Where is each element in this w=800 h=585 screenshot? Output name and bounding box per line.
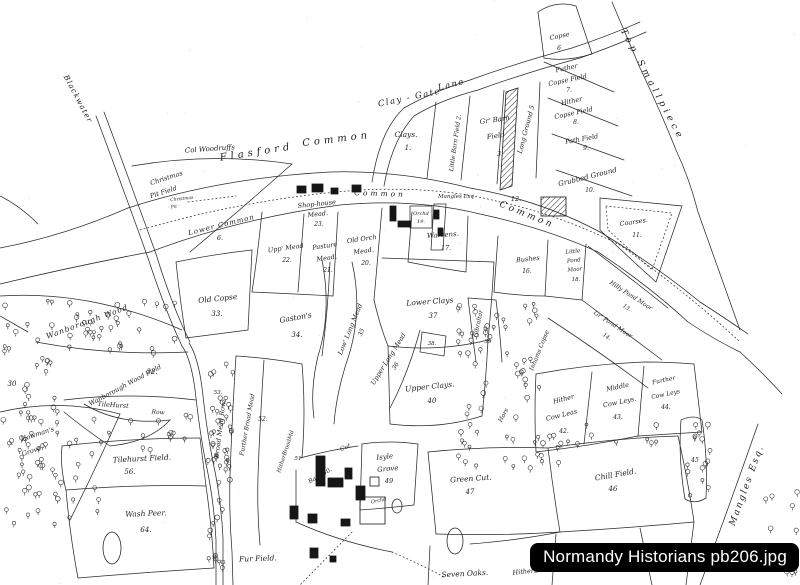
map-label-path-field-no: 9. — [583, 145, 589, 152]
tree-icon — [503, 456, 507, 463]
tree-icon — [26, 322, 29, 328]
scan-speckle — [28, 198, 29, 199]
tree-icon — [209, 431, 213, 438]
tree-icon — [25, 382, 30, 389]
scan-speckle — [699, 326, 700, 327]
tree-icon — [706, 486, 710, 493]
tree-icon — [75, 438, 78, 444]
enclosure-outline — [392, 499, 402, 513]
map-label-wash-peer-no: 64. — [140, 526, 151, 534]
scan-speckle — [475, 34, 476, 35]
tree-icon — [790, 504, 794, 511]
map-label-bushes-no: 16. — [522, 268, 532, 275]
tree-icon — [51, 468, 55, 474]
map-label-further-broad-no: 52. — [258, 416, 268, 423]
building — [312, 184, 323, 192]
map-label-christmas-pit-1: · Christmas · — [167, 194, 197, 203]
map-label-old-orch-2: Mead. — [352, 246, 375, 257]
map-label-no-30: 30 — [8, 380, 17, 388]
tree-icon — [53, 396, 56, 402]
map-label-old-copse-no: 33. — [211, 310, 222, 318]
tree-icon — [218, 464, 221, 470]
scan-speckle — [167, 113, 168, 114]
tree-icon — [795, 490, 800, 497]
map-label-futher-copse-2: Copse Field — [548, 72, 588, 88]
map-label-chill-field: Chill Field. — [594, 466, 637, 482]
tree-icon — [511, 437, 515, 444]
building — [330, 556, 336, 562]
tree-icon — [54, 473, 58, 479]
tree-icon — [184, 413, 188, 419]
map-label-little-pond-no: 18. — [572, 277, 581, 283]
tree-icon — [515, 371, 520, 379]
building — [308, 514, 317, 523]
building — [434, 210, 439, 219]
scan-speckle — [384, 230, 385, 231]
tree-icon — [116, 321, 119, 327]
map-label-grt-barn-2: Field — [485, 131, 505, 142]
scan-speckle — [57, 394, 58, 395]
tree-icon — [537, 435, 540, 441]
map-labels: BlackwaterCol WoodruffsChristmasPit Fiel… — [8, 27, 767, 579]
map-label-pasture-no: 21. — [322, 267, 333, 274]
tree-icon — [68, 516, 72, 522]
scan-speckle — [55, 469, 56, 470]
map-label-middle-cow-1: Middle — [605, 381, 630, 394]
tree-icon — [55, 410, 59, 416]
map-label-old-orch-no: 20. — [360, 260, 371, 267]
tree-icon — [7, 347, 10, 353]
tree-icon — [98, 334, 102, 340]
enclosure-outline — [447, 528, 463, 554]
scan-speckle — [238, 491, 239, 492]
tree-icon — [212, 522, 215, 527]
scan-speckle — [695, 535, 696, 536]
map-label-upper-long-mead-no: 36 — [391, 361, 401, 371]
map-stage: BlackwaterCol WoodruffsChristmasPit Fiel… — [0, 0, 800, 585]
tree-icon — [207, 534, 211, 541]
tree-icon — [53, 492, 57, 498]
tree-icon — [3, 303, 8, 310]
tree-icon — [155, 302, 159, 308]
tree-icon — [224, 362, 228, 369]
tree-icon — [14, 329, 19, 336]
tree-icon — [527, 319, 532, 326]
tree-icon — [512, 464, 515, 470]
map-label-upp-mead: Upp' Mead — [267, 242, 304, 255]
tree-icon — [481, 391, 486, 398]
tree-icon — [522, 358, 526, 365]
tree-icon — [128, 419, 132, 426]
building — [541, 197, 566, 216]
building — [390, 206, 396, 221]
tree-icon — [142, 299, 146, 306]
map-label-mangles-box: Mangles Esq — [437, 194, 474, 200]
tree-icon — [505, 435, 508, 441]
map-label-chill-field-no: 46 — [608, 485, 618, 493]
tree-icon — [1, 417, 6, 424]
map-label-clays: Clays. — [394, 130, 417, 139]
scan-speckle — [363, 172, 364, 173]
scan-speckle — [319, 335, 320, 336]
scan-speckle — [592, 37, 593, 38]
scan-speckle — [59, 583, 60, 584]
scan-speckle — [293, 297, 294, 298]
map-label-coarses: Coarses. — [619, 216, 648, 228]
map-label-inhams-copse: Inhams Copse — [528, 329, 551, 373]
map-label-coarses-no: 11. — [632, 232, 642, 239]
tree-icon — [225, 448, 229, 454]
tree-icon — [540, 441, 545, 449]
tree-icon — [231, 370, 234, 376]
map-label-hither-broad-mead: HitherBroadMd — [276, 429, 296, 474]
tree-icon — [220, 566, 224, 573]
map-label-grubbed-ground: Grubbed Ground — [557, 166, 618, 188]
map-label-christmas-pit-field-1: Christmas — [149, 169, 184, 187]
tree-icon — [34, 493, 37, 499]
tree-icon — [465, 351, 470, 358]
map-label-tilehurst-row-2: Row — [150, 408, 166, 416]
scan-speckle — [185, 112, 186, 113]
scan-speckle — [477, 174, 478, 175]
scan-speckle — [307, 17, 308, 18]
scan-speckle — [116, 15, 117, 16]
building — [297, 186, 306, 193]
tree-icon — [21, 463, 24, 468]
tree-icon — [528, 466, 532, 473]
building — [356, 486, 365, 500]
tree-icon — [21, 470, 25, 476]
map-label-common-mid: Common — [354, 188, 406, 199]
tree-icon — [151, 351, 156, 358]
tree-icon — [67, 441, 72, 448]
map-label-upp-mead-no: 22. — [281, 257, 292, 264]
map-label-parcel-38: 38. — [428, 341, 437, 347]
tree-icon — [655, 440, 658, 446]
map-label-lower-clays: Lower Clays — [405, 295, 454, 307]
map-label-copse: Copse — [549, 30, 571, 42]
tree-icon — [141, 446, 145, 452]
scan-speckle — [459, 242, 460, 243]
tree-icon — [479, 348, 483, 354]
tree-icon — [173, 301, 177, 307]
map-label-hilly-pond-no: 13. — [621, 303, 632, 313]
map-label-wash-peer: Wash Peer. — [125, 508, 167, 518]
map-label-lower-clays-no: 37 — [429, 312, 438, 320]
map-label-old-orch-1: Old Orch — [346, 233, 377, 245]
building — [341, 519, 350, 526]
tree-icon — [208, 371, 213, 378]
map-label-clay-gate-lane: Lane — [436, 77, 466, 94]
tree-icon — [93, 486, 97, 492]
building — [290, 506, 298, 519]
map-label-old-copse: Old Copse — [198, 292, 238, 305]
map-label-upper-clays-no: 40 — [427, 397, 437, 405]
map-label-long-ground: Long Ground 5 — [516, 104, 537, 155]
map-label-little-pond-1: Little — [564, 248, 581, 256]
tree-icon — [524, 304, 527, 310]
tree-icon — [68, 345, 71, 351]
tree-icon — [22, 488, 26, 495]
map-label-gibraltar-no: 39 — [485, 339, 492, 345]
tree-icon — [224, 468, 227, 474]
map-label-green-cut-no: 47 — [465, 488, 475, 496]
scan-speckle — [674, 165, 675, 166]
tree-icon — [538, 385, 541, 391]
building — [345, 468, 352, 479]
tree-icon — [492, 325, 495, 331]
tree-icon — [654, 423, 659, 430]
tree-icon — [172, 336, 177, 344]
tree-icon — [35, 363, 38, 369]
tree-icon — [6, 324, 9, 330]
tree-icon — [708, 448, 712, 455]
map-label-no-45: 45 — [690, 457, 699, 464]
scan-speckle — [226, 454, 227, 455]
tree-icon — [46, 299, 49, 304]
tree-icon — [473, 362, 477, 369]
tree-icon — [92, 336, 95, 342]
map-label-seven-oaks: Seven Oaks. — [441, 568, 488, 579]
building — [331, 188, 338, 194]
tree-icon — [463, 441, 467, 447]
map-label-hors: Hors — [497, 407, 511, 424]
tree-icon — [26, 513, 30, 519]
map-label-gastons-no: 34. — [291, 331, 302, 339]
map-label-pasture-2: Mead. — [315, 253, 338, 264]
scan-speckle — [203, 170, 204, 171]
tree-icon — [26, 416, 30, 422]
tree-icon — [479, 406, 484, 413]
tree-icon — [686, 463, 689, 469]
tree-icon — [89, 331, 93, 337]
building — [328, 478, 343, 487]
tree-icon — [150, 346, 154, 353]
scan-speckle — [306, 175, 307, 176]
map-label-bushes: Bushes — [515, 254, 541, 265]
tree-icon — [36, 338, 40, 344]
map-label-little-pond-3: Moor — [566, 266, 583, 274]
map-label-hither-broad-no: 51 — [295, 456, 302, 462]
tree-icon — [127, 311, 131, 318]
tree-icon — [73, 476, 77, 483]
tree-icon — [468, 445, 471, 451]
tree-icon — [700, 466, 704, 473]
map-label-warrens: Warrens. — [427, 230, 459, 240]
tree-icon — [228, 406, 232, 413]
tree-icon — [33, 416, 36, 422]
tree-icon — [41, 463, 45, 470]
map-label-little-barn-field: Little Barn Field 2. — [448, 114, 463, 173]
map-label-shop-house-no: 23. — [313, 221, 324, 228]
tree-icon — [467, 404, 471, 411]
map-label-tilehurst-field: Tilehurst Field. — [112, 452, 171, 464]
tree-icon — [56, 421, 59, 427]
tree-icon — [108, 348, 111, 354]
scan-speckle — [163, 521, 164, 522]
tree-icon — [461, 439, 464, 445]
scan-speckle — [505, 397, 506, 398]
map-label-broad-mead-row-no: 53. — [214, 390, 223, 396]
tree-icon — [457, 454, 461, 461]
tree-icon — [183, 437, 186, 443]
map-label-middle-cow-2: Cow Leys. — [602, 395, 637, 410]
enclosure-outline — [103, 532, 121, 564]
tree-icon — [109, 326, 113, 333]
scan-speckle — [573, 343, 574, 344]
tree-icon — [76, 462, 80, 468]
scan-speckle — [612, 252, 613, 253]
tree-icon — [43, 442, 47, 449]
scan-speckle — [96, 497, 97, 498]
map-label-lower-common-no: 6. — [217, 234, 223, 242]
map-label-orchd-box-no: 19. — [417, 219, 425, 225]
tree-icon — [506, 352, 509, 357]
map-label-warrens-no: 17. — [441, 244, 451, 252]
tree-icon — [72, 498, 75, 504]
map-label-middle-cow-no: 43. — [612, 414, 623, 421]
scan-speckle — [632, 182, 633, 183]
map-label-cut: Cut — [339, 442, 352, 453]
map-label-further-cow-1: Further — [650, 374, 677, 386]
map-label-gibraltar: Gibraltar — [472, 308, 485, 338]
tree-icon — [649, 441, 653, 448]
map-label-top-smallpiece: Top Smallpiece — [618, 27, 686, 143]
tree-icon — [137, 328, 140, 334]
map-label-further-cow-no: 44. — [660, 404, 671, 411]
tree-icon — [525, 395, 530, 402]
map-label-hither-cow-no: 42. — [558, 428, 569, 435]
tree-icon — [8, 441, 12, 447]
tree-icon — [67, 300, 72, 307]
scan-speckle — [160, 270, 161, 271]
tree-icon — [589, 433, 593, 440]
map-label-isyle-2: Grove — [377, 464, 399, 474]
map-label-tilehurst-row-1: TileHurst — [97, 400, 129, 410]
map-label-isyle-no: 49 — [384, 477, 393, 485]
tree-icon — [210, 406, 214, 413]
scan-speckle — [480, 206, 481, 207]
tree-icon — [468, 422, 472, 428]
map-label-shop-house-2: Mead. — [306, 209, 328, 219]
tree-icon — [524, 383, 527, 389]
scan-speckle — [493, 0, 494, 1]
map-label-copse-no: 6 — [557, 45, 561, 52]
tree-icon — [26, 394, 30, 401]
scan-speckle — [668, 434, 669, 435]
map-label-wanborough-field-no: 32. — [146, 368, 157, 376]
map-label-gr-pond: Gr' Pond Moor — [592, 310, 634, 341]
tree-icon — [218, 560, 221, 565]
tree-icon — [456, 340, 460, 346]
tree-icon — [117, 344, 121, 351]
tree-icon — [19, 411, 22, 417]
map-label-hither-copse-1: Hither — [559, 95, 584, 108]
tree-icon — [459, 429, 464, 436]
scan-speckle — [189, 50, 190, 51]
tree-icon — [504, 325, 507, 331]
map-label-fur-field: Fur Field. — [238, 553, 277, 563]
tree-icon — [460, 332, 464, 338]
map-label-christmas-pit-2: · Pit · — [168, 203, 181, 210]
tree-icon — [535, 314, 538, 320]
tree-icon — [700, 436, 705, 443]
tree-icon — [37, 491, 41, 498]
tree-icon — [36, 509, 40, 516]
map-label-common-no: 12. — [511, 195, 521, 203]
tree-icon — [59, 480, 64, 487]
map-label-futher-copse-no: 7. — [566, 87, 572, 94]
tree-icon — [694, 423, 698, 430]
tree-icon — [514, 415, 519, 422]
scan-speckle — [494, 290, 495, 291]
tree-icon — [705, 422, 710, 430]
map-label-grubbed-ground-no: 10. — [585, 187, 595, 194]
map-label-little-pond-2: Pond — [566, 257, 582, 265]
map-label-hither-cow-1: Hither — [551, 392, 576, 405]
tree-symbols — [1, 0, 799, 584]
tree-icon — [459, 352, 462, 358]
building — [398, 221, 411, 227]
map-label-upper-long-mead: Upper Long Mead — [369, 331, 408, 386]
scan-speckle — [361, 46, 362, 47]
tree-icon — [207, 557, 210, 563]
tree-icon — [697, 431, 701, 437]
scan-speckle — [537, 309, 538, 310]
tree-icon — [646, 438, 649, 444]
tree-icon — [39, 419, 43, 426]
tree-icon — [27, 474, 32, 481]
tree-icon — [465, 412, 469, 419]
tree-icon — [53, 522, 56, 528]
map-label-tilehurst-field-no: 56. — [124, 468, 135, 476]
tree-icon — [92, 330, 95, 336]
scan-speckle — [661, 168, 662, 169]
building — [370, 477, 379, 486]
map-label-flasford-common: Common — [302, 130, 372, 149]
tree-icon — [4, 508, 8, 514]
tree-icon — [50, 300, 53, 306]
scan-speckle — [433, 577, 434, 578]
tree-icon — [794, 528, 798, 535]
tree-icon — [693, 434, 697, 441]
tree-icon — [56, 431, 59, 437]
tree-icon — [206, 458, 210, 465]
tree-icon — [49, 361, 52, 367]
map-label-further-broad-mead: Further Broad Mead — [238, 393, 256, 457]
tree-icon — [764, 497, 768, 504]
tree-icon — [540, 459, 543, 465]
tree-icon — [539, 453, 543, 460]
tree-icon — [514, 363, 518, 370]
tree-icon — [156, 419, 160, 426]
map-label-green-cut: Green Cut. — [450, 473, 492, 485]
tree-icon — [475, 464, 478, 470]
map-label-grt-barn-no: 3. — [497, 150, 503, 158]
scan-speckle — [573, 432, 574, 433]
tree-icon — [55, 496, 60, 503]
tree-icon — [215, 515, 220, 523]
scan-speckle — [690, 478, 691, 479]
tree-icon — [230, 430, 233, 436]
tree-icon — [770, 494, 774, 501]
building — [310, 548, 318, 558]
tree-icon — [226, 458, 229, 464]
tree-icon — [476, 430, 479, 436]
tree-icon — [463, 460, 467, 467]
scan-speckle — [616, 118, 617, 119]
tree-icon — [502, 318, 505, 324]
